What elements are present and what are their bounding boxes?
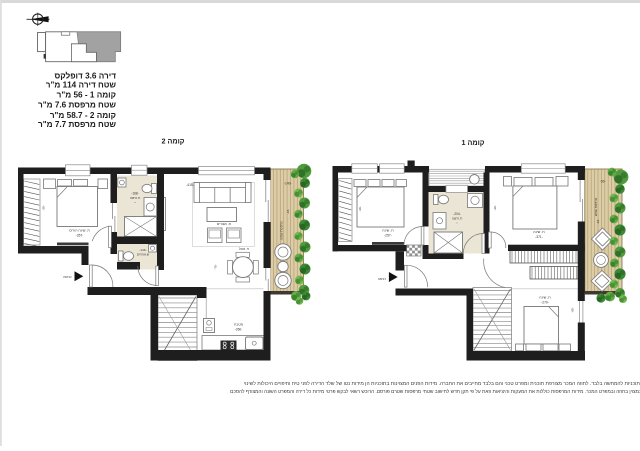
svg-text:-415-: -415-: [186, 183, 194, 187]
svg-text:-140-: -140-: [284, 182, 292, 186]
svg-text:-75-: -75-: [214, 264, 218, 269]
svg-text:כמצוין בחוזה ובמפרט המכר. מידו: כמצוין בחוזה ובמפרט המכר. מידות המרפסות …: [230, 388, 640, 395]
svg-text:-30-: -30-: [358, 206, 362, 211]
svg-text:-168-: -168-: [131, 192, 138, 196]
svg-text:ת.רחצה: ת.רחצה: [452, 217, 463, 221]
svg-text:*התוכניות להמחשה בלבד. לחוזה ה: *התוכניות להמחשה בלבד. לחוזה המכר מצורפת…: [244, 380, 640, 387]
svg-text:-270-: -270-: [541, 301, 549, 305]
svg-text:-257-: -257-: [384, 234, 392, 238]
svg-text:-357-: -357-: [76, 233, 84, 237]
svg-text:פ. אוכל: פ. אוכל: [239, 247, 249, 251]
svg-text:-90-: -90-: [571, 307, 575, 312]
svg-text:-30-: -30-: [42, 205, 46, 210]
svg-text:-18-: -18-: [286, 209, 290, 214]
svg-text:שטח דירה 114 מ"ר: שטח דירה 114 מ"ר: [46, 80, 117, 89]
svg-text:כניסה: כניסה: [378, 277, 386, 281]
svg-text:ת. שינה הורים: ת. שינה הורים: [69, 228, 90, 232]
svg-text:-260-: -260-: [235, 328, 243, 332]
svg-text:-146-: -146-: [139, 248, 146, 252]
svg-text:מרפסת שמש: מרפסת שמש: [280, 221, 284, 239]
svg-text:-371-: -371-: [535, 235, 543, 239]
svg-text:ת.רחצה: ת.רחצה: [130, 196, 141, 200]
svg-text:קומה 1 - 56 מ"ר: קומה 1 - 56 מ"ר: [57, 91, 116, 100]
svg-text:-50-: -50-: [600, 180, 606, 184]
svg-text:ת. שינה: ת. שינה: [533, 230, 545, 234]
svg-text:ת. מגורים: ת. מגורים: [217, 222, 232, 226]
svg-text:-204-: -204-: [453, 212, 460, 216]
svg-text:שטח מרפסת 7.6 מ"ר: שטח מרפסת 7.6 מ"ר: [38, 101, 116, 110]
svg-text:מטבח: מטבח: [234, 322, 244, 326]
svg-text:קומה 2: קומה 2: [162, 136, 185, 145]
svg-text:כניסה: כניסה: [63, 275, 71, 279]
svg-text:ש.אורחים: ש.אורחים: [137, 253, 150, 257]
svg-text:שטח מרפסת 7.7 מ"ר: שטח מרפסת 7.7 מ"ר: [38, 120, 116, 129]
svg-text:ת. שינה: ת. שינה: [382, 229, 394, 233]
svg-text:-18-: -18-: [596, 219, 600, 224]
svg-text:-30-: -30-: [493, 205, 497, 210]
svg-text:דירה 3.6 דופלקס: דירה 3.6 דופלקס: [55, 71, 117, 80]
svg-text:מרפסת שמש: מרפסת שמש: [594, 198, 598, 216]
svg-text:קומה 2 - 58.7 מ"ר: קומה 2 - 58.7 מ"ר: [50, 111, 116, 120]
svg-text:קומה 1: קומה 1: [462, 138, 485, 147]
svg-text:ת. שינה: ת. שינה: [539, 296, 551, 300]
